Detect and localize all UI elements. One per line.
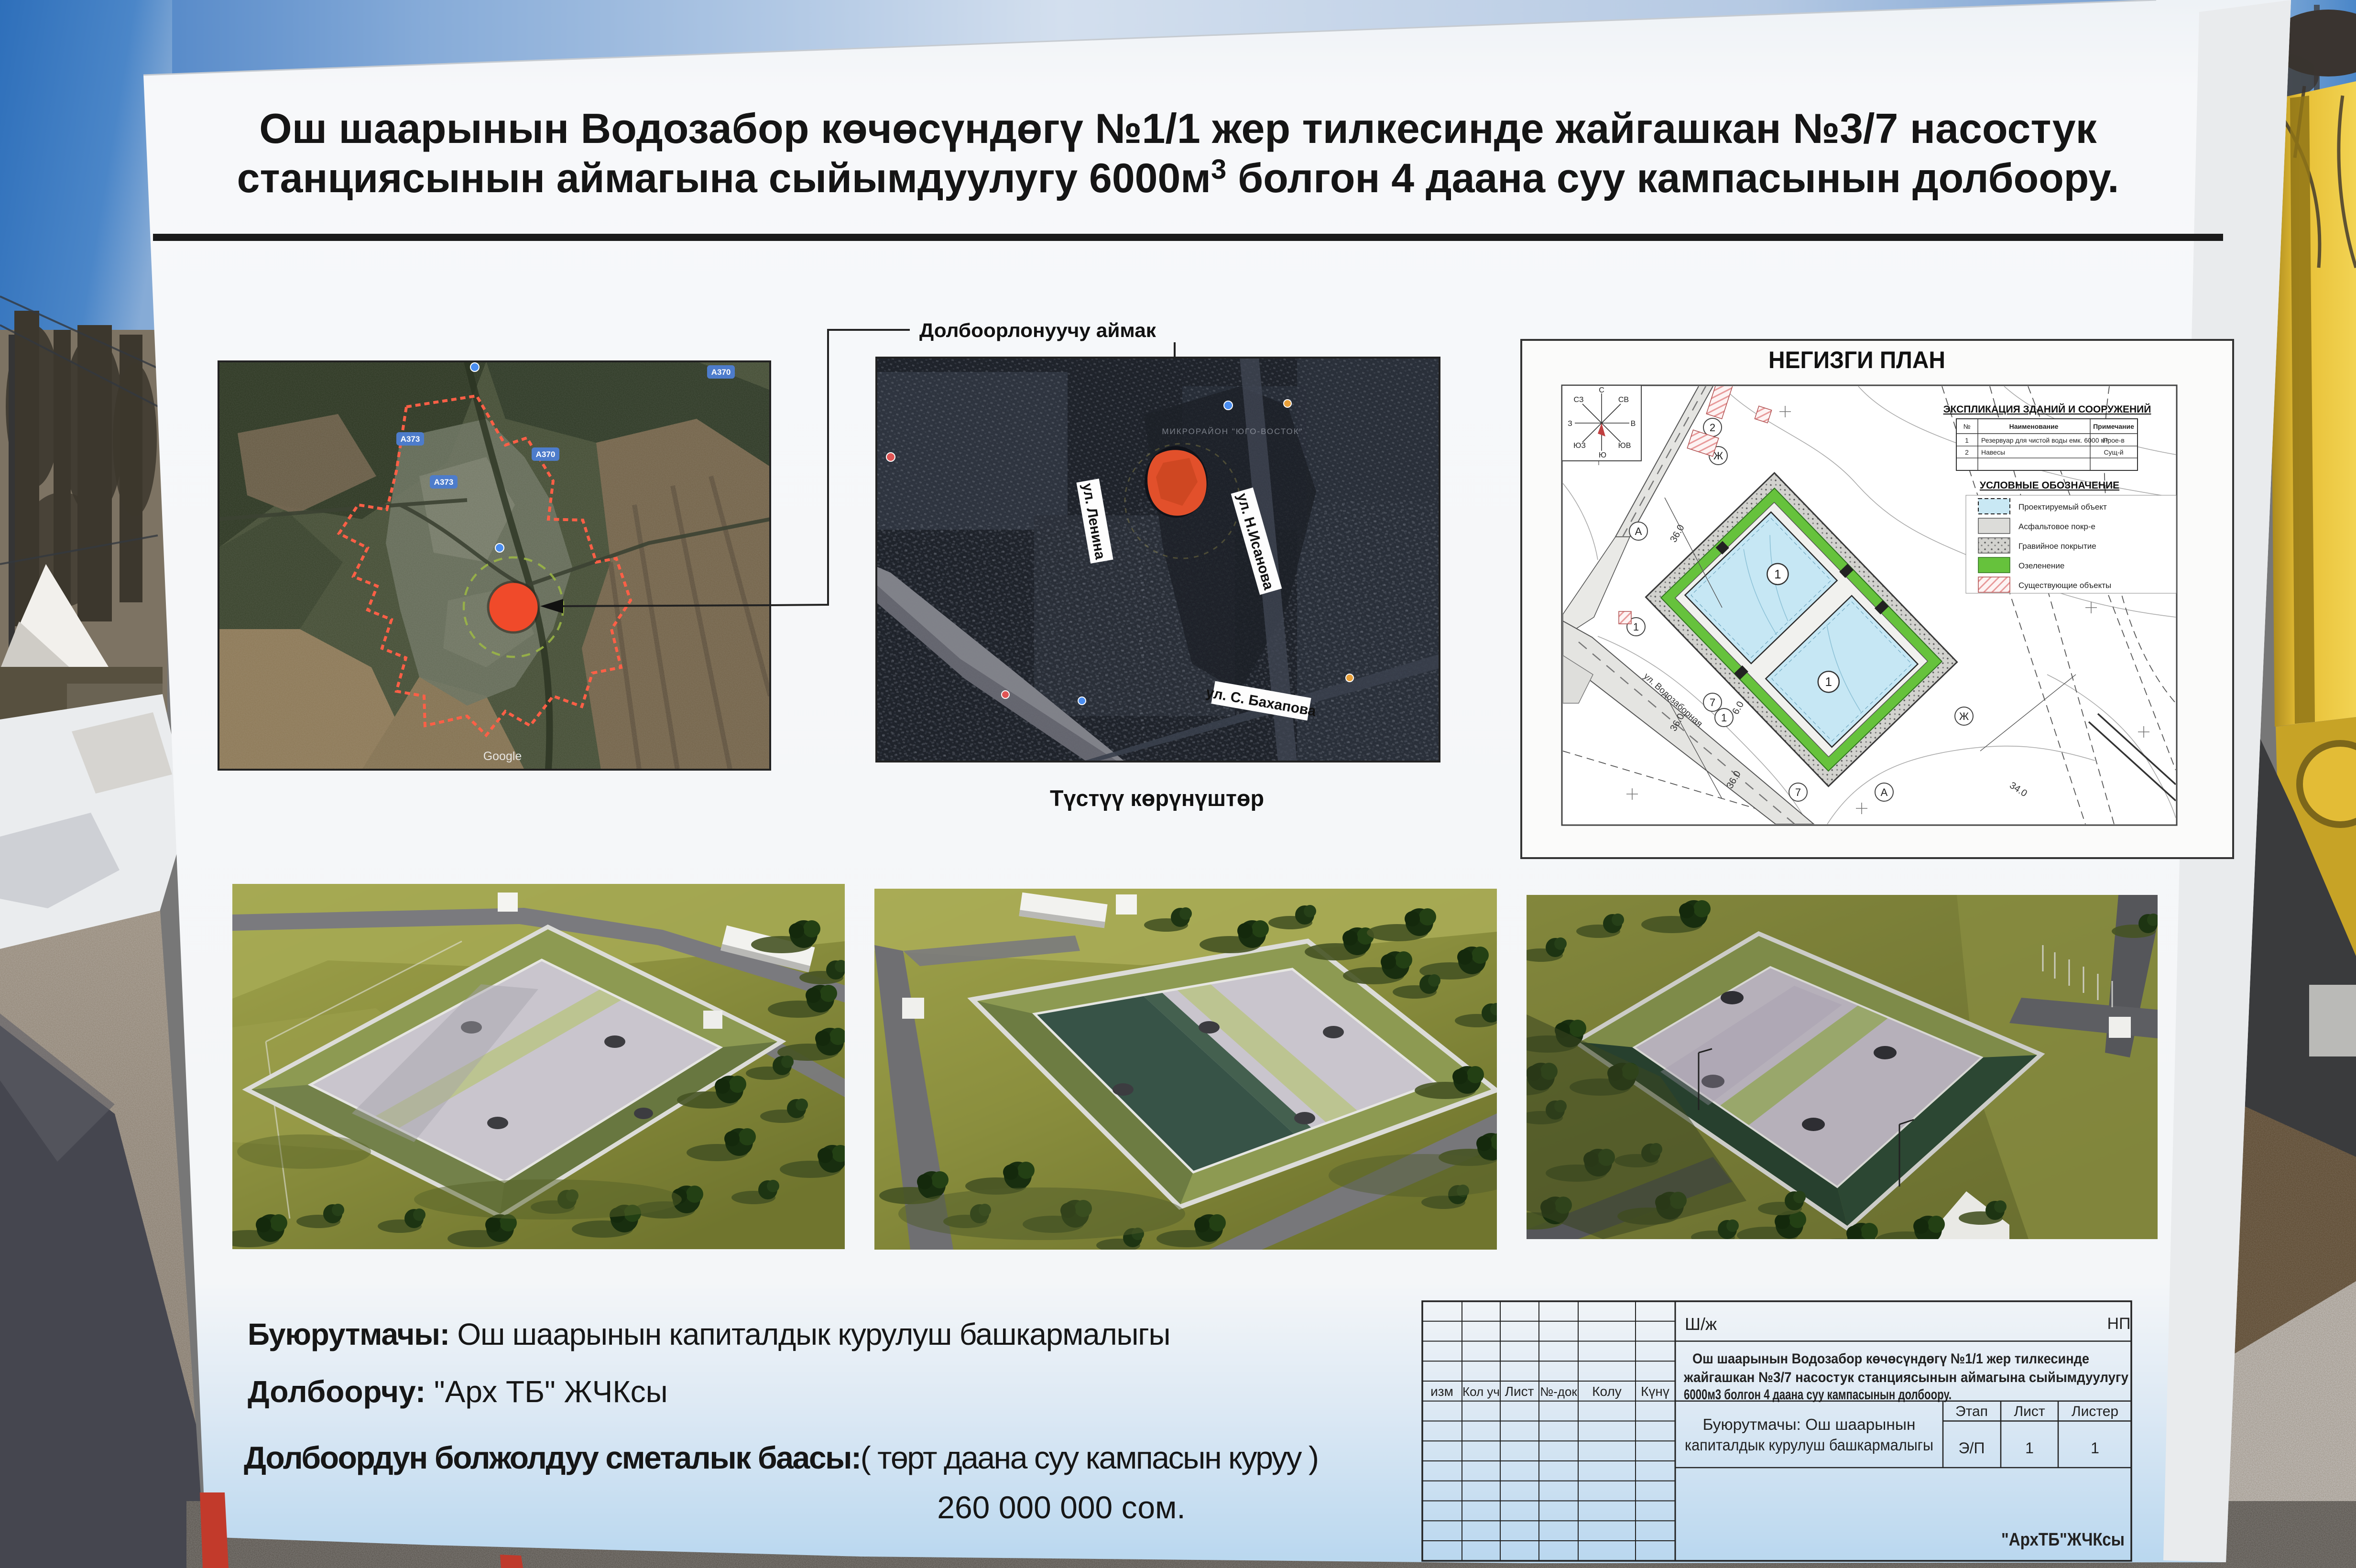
svg-text:1: 1 [1774, 567, 1781, 581]
svg-text:НП: НП [2107, 1315, 2131, 1333]
svg-text:Колу: Колу [1592, 1384, 1622, 1399]
svg-text:A370: A370 [711, 368, 731, 377]
svg-text:УСЛОВНЫЕ ОБОЗНАЧЕНИЕ: УСЛОВНЫЕ ОБОЗНАЧЕНИЕ [1980, 480, 2119, 491]
svg-text:A373: A373 [434, 478, 454, 487]
svg-text:260 000 000 сом.: 260 000 000 сом. [937, 1490, 1186, 1525]
svg-text:A373: A373 [401, 435, 420, 444]
svg-text:1: 1 [1965, 436, 1969, 444]
svg-text:Э/П: Э/П [1959, 1439, 1985, 1457]
svg-text:С: С [1599, 386, 1604, 394]
svg-text:Наименование: Наименование [2009, 423, 2059, 430]
svg-text:В: В [1631, 420, 1636, 428]
svg-text:Лист: Лист [2014, 1404, 2045, 1419]
svg-text:7: 7 [1795, 786, 1801, 798]
svg-text:"АрхТБ"ЖЧКсы: "АрхТБ"ЖЧКсы [2001, 1530, 2125, 1550]
svg-text:Навесы: Навесы [1981, 448, 2005, 456]
svg-text:A370: A370 [536, 450, 556, 459]
svg-text:№: № [1963, 423, 1970, 430]
svg-text:СЗ: СЗ [1573, 396, 1583, 404]
svg-text:МИКРОРАЙОН "ЮГО-ВОСТОК": МИКРОРАЙОН "ЮГО-ВОСТОК" [1162, 427, 1303, 436]
svg-text:А: А [1881, 786, 1888, 798]
svg-text:Ж: Ж [1713, 450, 1723, 462]
svg-text:Ю: Ю [1599, 451, 1606, 459]
svg-text:2: 2 [1965, 448, 1969, 456]
svg-text:Существующие объекты: Существующие объекты [2018, 581, 2111, 590]
svg-text:ЮЗ: ЮЗ [1573, 442, 1586, 450]
svg-text:станциясынын аймагына сыйымдуу: станциясынын аймагына сыйымдуулугу 6000м… [237, 154, 2119, 201]
svg-text:Түстүү көрүнүштөр: Түстүү көрүнүштөр [1050, 785, 1264, 811]
svg-text:капиталдык курулуш башкармалыг: капиталдык курулуш башкармалыгы [1685, 1436, 1933, 1454]
svg-text:№-док: №-док [1540, 1384, 1577, 1399]
svg-text:1: 1 [1825, 675, 1832, 689]
svg-text:Ош шаарынын Водозабор көчөсүнд: Ош шаарынын Водозабор көчөсүндөгү №1/1 ж… [1692, 1351, 2089, 1367]
svg-text:Листер: Листер [2072, 1404, 2118, 1419]
svg-text:1: 1 [1721, 712, 1727, 724]
svg-text:Прое-в: Прое-в [2103, 436, 2125, 444]
svg-text:2: 2 [1710, 422, 1715, 434]
svg-text:Проектируемый объект: Проектируемый объект [2018, 502, 2107, 512]
svg-text:Долбоорлонуучу аймак: Долбоорлонуучу аймак [919, 319, 1156, 341]
svg-text:Буюрутмачы: Ош шаарынын капи: Буюрутмачы: Ош шаарынын капиталдык курул… [248, 1317, 1170, 1351]
svg-text:З: З [1568, 420, 1572, 428]
svg-text:Кол уч: Кол уч [1462, 1384, 1500, 1399]
svg-text:НЕГИЗГИ ПЛАН: НЕГИЗГИ ПЛАН [1768, 347, 1945, 373]
svg-text:Сущ-й: Сущ-й [2104, 448, 2123, 456]
svg-text:7: 7 [1710, 697, 1715, 708]
svg-text:Примечание: Примечание [2093, 423, 2134, 430]
svg-text:жайгашкан №3/7 насостук станци: жайгашкан №3/7 насостук станциясынын айм… [1683, 1370, 2128, 1385]
svg-text:ЭКСПЛИКАЦИЯ ЗДАНИЙ И СООРУЖЕНИ: ЭКСПЛИКАЦИЯ ЗДАНИЙ И СООРУЖЕНИЙ [1943, 403, 2151, 415]
svg-text:Ош шаарынын Водозабор көчөсү: Ош шаарынын Водозабор көчөсүндөгү №1/1 ж… [259, 105, 2097, 152]
svg-text:Гравийное покрытие: Гравийное покрытие [2018, 542, 2096, 551]
svg-text:6000м3 болгон 4 даана суу кам: 6000м3 болгон 4 даана суу кампасынын дол… [1684, 1387, 1952, 1403]
svg-text:1: 1 [2091, 1439, 2099, 1457]
svg-text:Озеленение: Озеленение [2018, 561, 2064, 570]
svg-text:ЮВ: ЮВ [1618, 442, 1631, 450]
svg-text:изм: изм [1430, 1384, 1453, 1399]
svg-text:1: 1 [1633, 621, 1639, 633]
svg-text:Лист: Лист [1505, 1384, 1534, 1399]
svg-text:Ш/ж: Ш/ж [1685, 1314, 1717, 1334]
svg-text:Долбоордун болжолдуу сметалык: Долбоордун болжолдуу сметалык баасы:( тө… [244, 1440, 1318, 1475]
svg-text:Резервуар для чистой воды емк.: Резервуар для чистой воды емк. 6000 м³ [1981, 436, 2108, 444]
svg-text:СВ: СВ [1618, 396, 1629, 404]
svg-text:Этап: Этап [1955, 1404, 1988, 1419]
svg-text:1: 1 [2025, 1439, 2034, 1457]
svg-text:Google: Google [483, 750, 522, 763]
svg-text:Ж: Ж [1959, 710, 1969, 722]
svg-text:Күнү: Күнү [1641, 1384, 1669, 1399]
svg-text:А: А [1635, 525, 1642, 537]
svg-text:Асфальтовое покр-е: Асфальтовое покр-е [2018, 522, 2095, 531]
svg-text:Долбоорчу: "Арх ТБ" ЖЧКсы: Долбоорчу: "Арх ТБ" ЖЧКсы [248, 1374, 668, 1409]
svg-text:Буюрутмачы: Ош шаарынын: Буюрутмачы: Ош шаарынын [1703, 1416, 1916, 1433]
